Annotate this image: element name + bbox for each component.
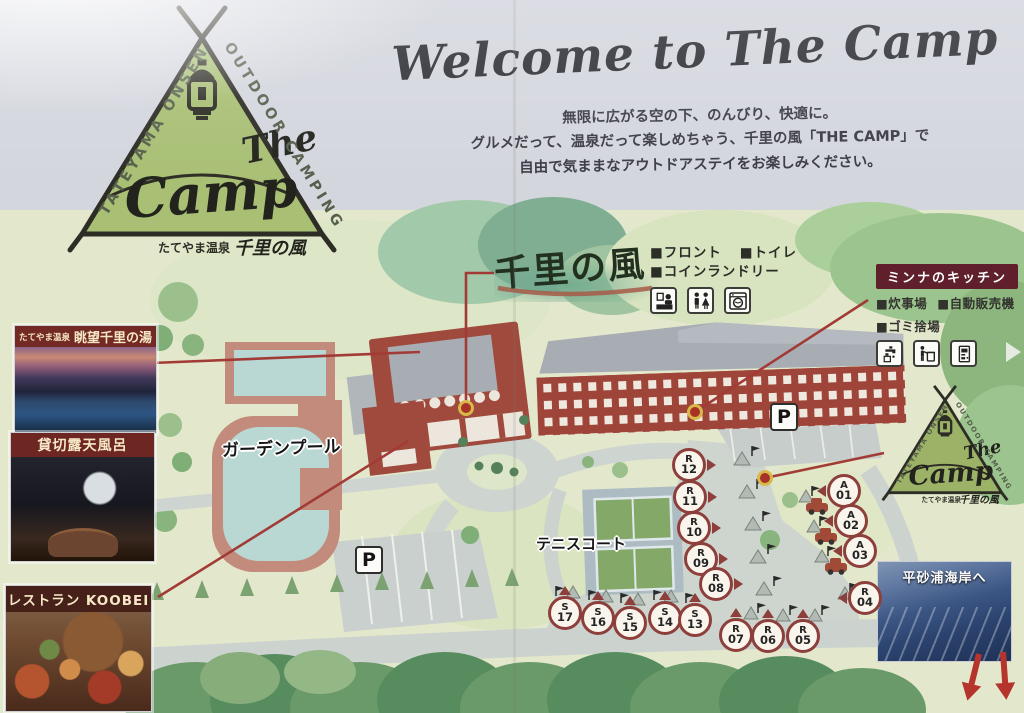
laundry-icon (724, 287, 751, 314)
photo-view-bath-image (15, 347, 156, 433)
site-marker-a01: A01 (827, 474, 861, 508)
photo-view-bath-name: 眺望千里の湯 (74, 327, 152, 346)
photo-private-bath-image (11, 457, 154, 561)
site-marker-s15: S15 (613, 606, 647, 640)
photo-view-bath-title: たてやま温泉 眺望千里の湯 (15, 326, 156, 347)
kitchen-vending: ■自動販売機 (937, 293, 1014, 312)
trash-disposal-icon (913, 340, 940, 367)
photo-card-restaurant: レストラン KOOBEI (5, 585, 152, 712)
site-marker-r06: R06 (751, 619, 785, 653)
photo-restaurant-image (6, 612, 151, 711)
legend-front: ■フロント (650, 244, 722, 263)
kitchen-cooking: ■炊事場 (876, 293, 927, 312)
front-desk-icon (650, 287, 677, 314)
brochure-page: Welcome to The Camp 無限に広がる空の下、のんびり、快適に。 … (0, 0, 1024, 713)
site-marker-r04: R04 (848, 581, 882, 615)
photo-card-beach: 平砂浦海岸へ (877, 561, 1012, 662)
logo-subtitle-brand: 千里の風 (234, 238, 308, 258)
site-marker-r11: R11 (673, 480, 707, 514)
legend-laundry: ■コインランドリー (650, 263, 780, 282)
site-marker-a03: A03 (843, 534, 877, 568)
photo-restaurant-title: レストラン KOOBEI (6, 586, 151, 612)
site-marker-r05: R05 (786, 619, 820, 653)
logo-subtitle-small: たてやま温泉 (158, 240, 231, 255)
bath-tub-shape (48, 528, 118, 557)
photo-private-bath-title: 貸切露天風呂 (11, 433, 154, 457)
kitchen-info-box: ミンナのキッチン ■炊事場 ■自動販売機 ■ゴミ捨場 (876, 264, 1018, 367)
site-marker-s17: S17 (548, 596, 582, 630)
parking-icon-sw: P (355, 546, 383, 574)
svg-text:たてやま温泉: たてやま温泉 (921, 495, 961, 504)
photo-beach-title: 平砂浦海岸へ (878, 567, 1011, 586)
site-marker-r07: R07 (719, 618, 753, 652)
garden-pool-label: ガーデンプール (222, 432, 341, 461)
beach-direction-arrows (962, 650, 1020, 712)
restroom-icon (687, 287, 714, 314)
vending-machine-icon (950, 340, 977, 367)
site-marker-r10: R10 (677, 511, 711, 545)
page-edge-arrow-icon (1006, 342, 1021, 362)
site-marker-s16: S16 (581, 601, 615, 635)
paper-fold-crease (513, 0, 516, 713)
photo-card-view-bath: たてやま温泉 眺望千里の湯 (14, 325, 157, 434)
kitchen-title: ミンナのキッチン (876, 264, 1018, 289)
camp-logo-small: The Camp TATEYAMA ONSEN OUTDOOR CAMPING … (874, 384, 1016, 504)
site-marker-s13: S13 (678, 603, 712, 637)
legend-toilet: ■トイレ (740, 244, 797, 263)
parking-icon-ne: P (770, 403, 798, 431)
site-marker-r12: R12 (672, 448, 706, 482)
water-tap-icon (876, 340, 903, 367)
photo-card-private-bath: 貸切露天風呂 (10, 432, 155, 562)
photo-view-bath-prefix: たてやま温泉 (19, 331, 70, 343)
svg-text:Camp: Camp (907, 455, 994, 492)
site-marker-a02: A02 (834, 504, 868, 538)
camp-logo-main: The Camp TATEYAMA ONSEN OUTDOOR CAMPING … (52, 4, 352, 258)
kitchen-trash: ■ゴミ捨場 (876, 316, 940, 335)
intro-text: 無限に広がる空の下、のんびり、快適に。 グルメだって、温泉だって楽しめちゃう、千… (399, 99, 1000, 183)
site-marker-s14: S14 (648, 601, 682, 635)
map-legend: ■フロント ■トイレ ■コインランドリー (650, 244, 880, 314)
svg-text:千里の風: 千里の風 (959, 494, 1000, 504)
site-marker-r08: R08 (699, 567, 733, 601)
logo-camp-text: Camp (122, 155, 299, 231)
tennis-court-label: テニスコート (536, 533, 626, 554)
